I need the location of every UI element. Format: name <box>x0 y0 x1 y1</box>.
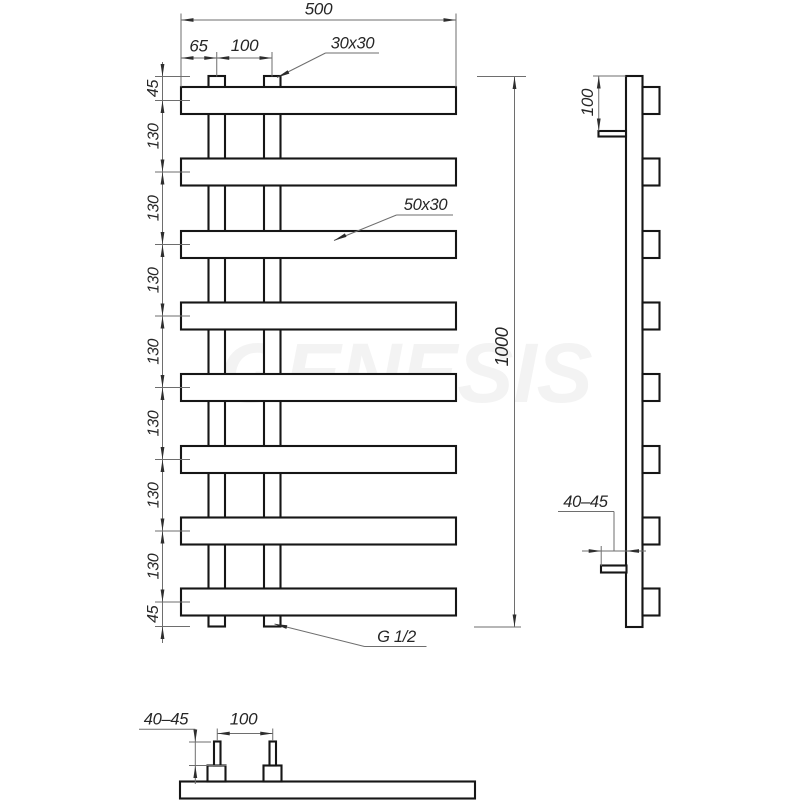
svg-text:500: 500 <box>305 0 333 19</box>
svg-text:130: 130 <box>146 482 163 508</box>
svg-text:100: 100 <box>578 88 597 116</box>
svg-text:45: 45 <box>145 80 162 98</box>
svg-text:130: 130 <box>146 123 163 149</box>
svg-text:130: 130 <box>146 338 163 364</box>
svg-text:130: 130 <box>146 553 163 579</box>
svg-text:65: 65 <box>189 37 208 56</box>
svg-text:130: 130 <box>146 195 163 221</box>
svg-text:30x30: 30x30 <box>331 34 376 52</box>
svg-text:40–45: 40–45 <box>563 493 609 511</box>
svg-text:100: 100 <box>230 710 258 729</box>
svg-text:130: 130 <box>146 410 163 436</box>
svg-text:50x30: 50x30 <box>404 196 449 214</box>
svg-text:G 1/2: G 1/2 <box>377 628 416 646</box>
svg-text:100: 100 <box>231 36 259 55</box>
svg-text:40–45: 40–45 <box>144 711 190 729</box>
svg-text:1000: 1000 <box>492 327 512 366</box>
svg-text:45: 45 <box>145 605 162 623</box>
svg-text:130: 130 <box>146 267 163 293</box>
